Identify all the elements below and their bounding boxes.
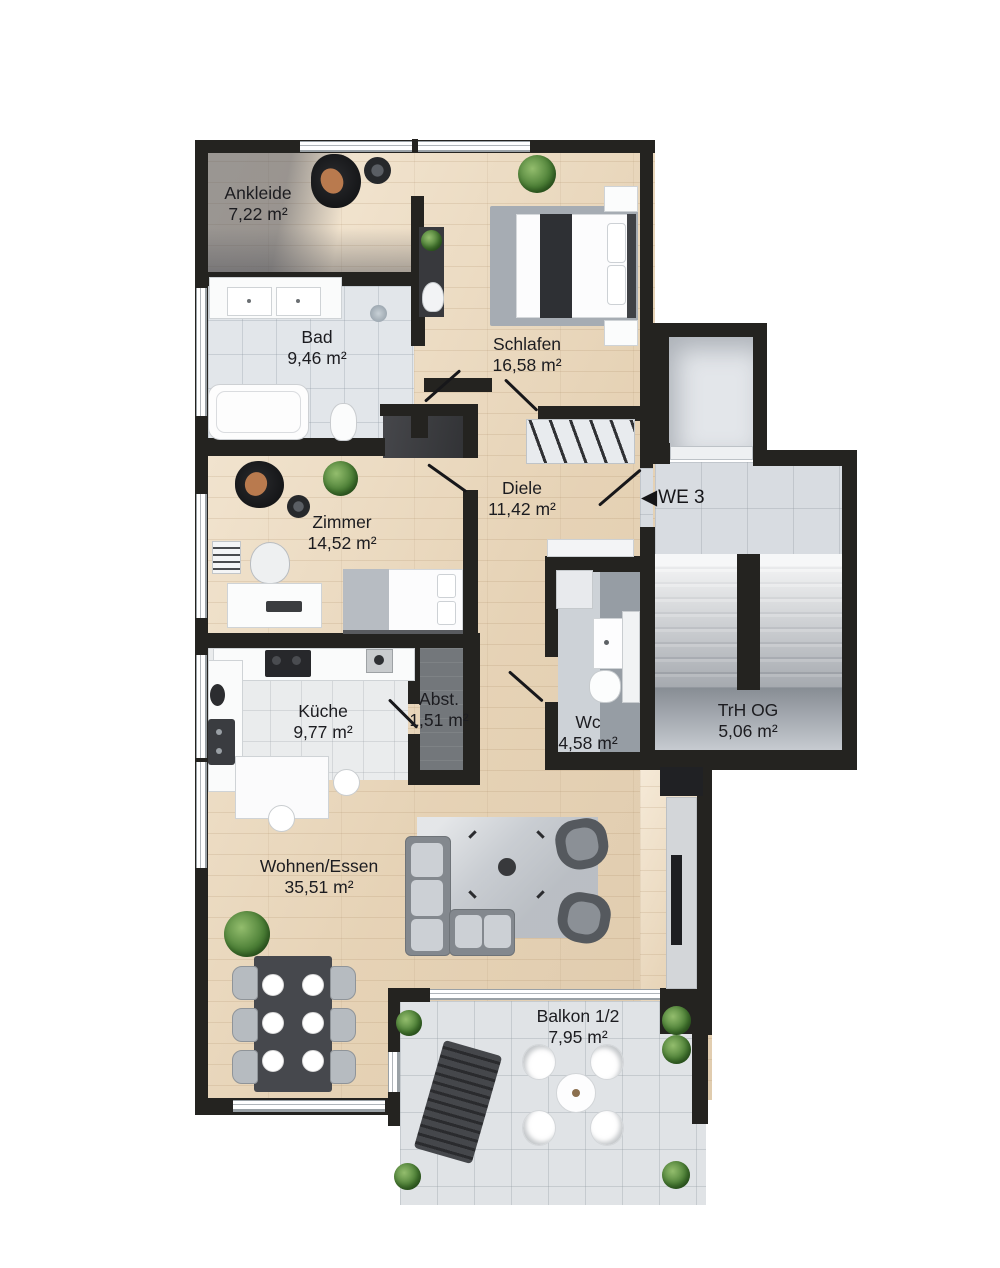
kitchen-sink bbox=[208, 719, 235, 765]
room-ankleide-floor-shadow-2 bbox=[208, 228, 411, 272]
robot-vacuum bbox=[364, 157, 391, 184]
kitchen-board bbox=[210, 684, 225, 706]
toilet bbox=[330, 403, 357, 441]
room-name: TrH OG bbox=[686, 700, 810, 721]
sofa-cushion bbox=[455, 915, 482, 948]
wall-balcony-right bbox=[692, 1034, 708, 1124]
dining-chair bbox=[232, 1008, 258, 1042]
tv bbox=[671, 855, 682, 945]
room-area: 5,06 m² bbox=[686, 721, 810, 742]
wc-sink-drain bbox=[604, 640, 609, 645]
plate bbox=[302, 974, 324, 996]
plate bbox=[262, 1012, 284, 1034]
wall-bad-bottom bbox=[195, 438, 385, 456]
label-bad: Bad 9,46 m² bbox=[255, 327, 379, 369]
wall-stairwell-upper-right bbox=[753, 323, 767, 456]
room-name: Wohnen/Essen bbox=[237, 856, 401, 877]
dining-chair bbox=[330, 1008, 356, 1042]
entrance-marker: ◀ WE 3 bbox=[641, 487, 705, 508]
sofa-cushion bbox=[484, 915, 511, 948]
desk-monitor bbox=[266, 601, 302, 612]
entrance-arrow-icon: ◀ bbox=[641, 487, 657, 508]
label-balkon: Balkon 1/2 7,95 m² bbox=[498, 1006, 658, 1048]
sofa-cushion bbox=[411, 843, 443, 877]
window-balcony-left bbox=[388, 1052, 400, 1092]
wall-balcony-left-b bbox=[388, 1092, 400, 1126]
wall-left bbox=[195, 140, 208, 1115]
wall-stairwell-stub bbox=[653, 443, 670, 464]
kitchen-faucet bbox=[216, 729, 222, 735]
bar-stool bbox=[268, 805, 295, 832]
sofa-cushion bbox=[411, 880, 443, 916]
window-balcony-door bbox=[430, 989, 660, 1000]
room-area: 35,51 m² bbox=[237, 877, 401, 898]
nightstand bbox=[604, 186, 638, 212]
plant bbox=[394, 1163, 421, 1190]
balcony-chair bbox=[590, 1110, 624, 1146]
cooktop bbox=[265, 650, 311, 677]
wall-niche-right bbox=[463, 404, 478, 458]
wc-toilet bbox=[589, 670, 621, 703]
wall-stairwell-top bbox=[653, 323, 767, 337]
label-wc: Wc 4,58 m² bbox=[548, 712, 628, 754]
stairwell-upper-room-threshold bbox=[670, 446, 753, 460]
dining-chair bbox=[330, 1050, 356, 1084]
wall-wc-bottom bbox=[545, 752, 655, 770]
room-name: Küche bbox=[257, 701, 389, 722]
room-area: 7,95 m² bbox=[498, 1027, 658, 1048]
dining-chair bbox=[330, 966, 356, 1000]
entrance-label: WE 3 bbox=[658, 487, 704, 508]
single-bed-frame bbox=[343, 630, 463, 634]
kitchen-faucet bbox=[216, 748, 222, 754]
coffee-table bbox=[498, 858, 516, 876]
label-diele: Diele 11,42 m² bbox=[454, 478, 590, 520]
window-living-bottom bbox=[233, 1100, 385, 1112]
window-left-bad bbox=[196, 288, 207, 416]
plate bbox=[262, 974, 284, 996]
room-name: Bad bbox=[255, 327, 379, 348]
plant bbox=[662, 1161, 690, 1189]
shower-drain bbox=[370, 305, 387, 322]
room-name: Abst. bbox=[401, 689, 477, 710]
console-chair bbox=[422, 282, 444, 312]
hall-wardrobe bbox=[526, 419, 635, 464]
plate bbox=[302, 1050, 324, 1072]
room-area: 4,58 m² bbox=[548, 733, 628, 754]
sink-drain bbox=[296, 299, 300, 303]
plate bbox=[302, 1012, 324, 1034]
plant bbox=[224, 911, 270, 957]
single-bed-blanket bbox=[343, 569, 389, 632]
nightstand bbox=[604, 320, 638, 346]
room-area: 14,52 m² bbox=[274, 533, 410, 554]
wall-stairwell-upper-left bbox=[653, 337, 669, 447]
room-name: Diele bbox=[454, 478, 590, 499]
plant bbox=[323, 461, 358, 496]
cooktop-burner bbox=[272, 656, 281, 665]
window-left-wohnen bbox=[196, 762, 207, 868]
room-name: Wc bbox=[548, 712, 628, 733]
plate bbox=[262, 1050, 284, 1072]
media-box bbox=[660, 767, 703, 796]
plant bbox=[662, 1035, 691, 1064]
dining-chair bbox=[232, 966, 258, 1000]
shelf bbox=[212, 541, 241, 574]
sink-drain bbox=[247, 299, 251, 303]
single-bed-pillow bbox=[437, 574, 456, 598]
room-name: Schlafen bbox=[459, 334, 595, 355]
stairwell-upper-room-floor bbox=[667, 337, 753, 446]
room-name: Ankleide bbox=[193, 183, 323, 204]
sofa-cushion bbox=[411, 919, 443, 951]
bed-pillow bbox=[607, 223, 626, 263]
room-area: 9,77 m² bbox=[257, 722, 389, 743]
single-bed-pillow bbox=[437, 601, 456, 625]
room-area: 1,51 m² bbox=[401, 710, 477, 731]
label-kueche: Küche 9,77 m² bbox=[257, 701, 389, 743]
room-area: 11,42 m² bbox=[454, 499, 590, 520]
stairwell-landing-floor bbox=[655, 462, 842, 554]
window-left-zimmer bbox=[196, 494, 207, 618]
bed-pillow bbox=[607, 265, 626, 305]
label-zimmer: Zimmer 14,52 m² bbox=[274, 512, 410, 554]
bathtub-inner bbox=[216, 391, 301, 433]
hall-sideboard bbox=[547, 539, 634, 557]
plant bbox=[396, 1010, 422, 1036]
coffee-machine-dot bbox=[374, 655, 384, 665]
wall-kueche-top bbox=[195, 633, 480, 648]
balcony-chair bbox=[522, 1110, 556, 1146]
plant bbox=[662, 1006, 691, 1035]
plant bbox=[421, 230, 442, 251]
plant bbox=[518, 155, 556, 193]
wc-tall-cabinet bbox=[622, 611, 640, 703]
bar-stool bbox=[333, 769, 360, 796]
room-area: 7,22 m² bbox=[193, 204, 323, 225]
label-abstellraum: Abst. 1,51 m² bbox=[401, 689, 477, 731]
room-name: Zimmer bbox=[274, 512, 410, 533]
window-top-mullion bbox=[412, 139, 418, 152]
cooktop-burner bbox=[292, 656, 301, 665]
stairs-divider-wall bbox=[737, 554, 760, 690]
balcony-chair bbox=[522, 1044, 556, 1080]
wall-stairwell-right bbox=[842, 450, 857, 770]
balcony-chair bbox=[590, 1044, 624, 1080]
window-left-kueche bbox=[196, 655, 207, 758]
label-wohnen-essen: Wohnen/Essen 35,51 m² bbox=[237, 856, 401, 898]
room-name: Balkon 1/2 bbox=[498, 1006, 658, 1027]
bed-headboard bbox=[627, 214, 636, 318]
label-treppenhaus: TrH OG 5,06 m² bbox=[686, 700, 810, 742]
bed-blanket bbox=[540, 214, 572, 318]
room-area: 16,58 m² bbox=[459, 355, 595, 376]
wc-cabinet bbox=[556, 570, 593, 609]
dining-chair bbox=[232, 1050, 258, 1084]
room-area: 9,46 m² bbox=[255, 348, 379, 369]
label-schlafen: Schlafen 16,58 m² bbox=[459, 334, 595, 376]
label-ankleide: Ankleide 7,22 m² bbox=[193, 183, 323, 225]
balcony-table-center bbox=[572, 1089, 580, 1097]
floor-plan: Ankleide 7,22 m² Bad 9,46 m² Schlafen 16… bbox=[0, 0, 1000, 1268]
